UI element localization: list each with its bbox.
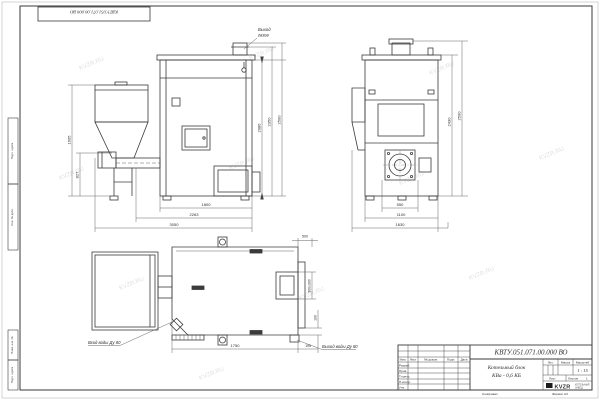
dim-side-width-inner: 550 bbox=[397, 202, 404, 207]
watermark: KVZR.RU bbox=[199, 366, 226, 381]
titleblock-name-line1: Котельный блок bbox=[487, 364, 526, 371]
dim-front-height-outer: 2500 bbox=[277, 115, 282, 125]
dim-front-left-outer: 1605 bbox=[67, 135, 72, 145]
footer-copied-label: Копировал bbox=[482, 392, 498, 396]
title-block: КВТУ.051.071.00.000 ВО Котельный блок КВ… bbox=[398, 345, 592, 390]
titleblock-col-doc: № докум. bbox=[424, 358, 438, 362]
titleblock-sheet-label: Лист bbox=[549, 376, 556, 380]
footer-format-label: Формат А3 bbox=[552, 392, 568, 396]
dim-side-width-mid: 1100 bbox=[397, 212, 406, 217]
margin-label-4: Подп. и дата bbox=[10, 366, 14, 383]
dim-plan-length: 1750 bbox=[231, 343, 241, 348]
titleblock-row-razrab: Разраб. bbox=[399, 364, 410, 368]
titleblock-lit-label: Лит. bbox=[548, 360, 554, 364]
titleblock-doc-number: КВТУ.051.071.00.000 ВО bbox=[494, 349, 568, 357]
titleblock-sheets-value: 1 bbox=[586, 376, 588, 380]
top-stamp-doc-number: КВТУ.051.071.00.000 ВО bbox=[69, 10, 119, 15]
titleblock-scale-label: Масштаб bbox=[576, 360, 589, 364]
watermark: KVZR.RU bbox=[429, 61, 456, 76]
dim-plan-offset: 195 bbox=[305, 344, 311, 348]
gas-outlet-label-line2: газов bbox=[258, 33, 269, 38]
dim-side-height-outer: 2500 bbox=[457, 111, 462, 121]
side-dimensions bbox=[352, 41, 468, 232]
titleblock-row-tkontr: Т.контр. bbox=[399, 375, 410, 379]
dim-front-left-inner: 827 bbox=[75, 171, 80, 178]
water-outlet-label: Выход воды Ду 80 bbox=[322, 344, 358, 349]
dim-side-height-inner: 2430 bbox=[447, 117, 452, 127]
dim-side-width-total: 1630 bbox=[396, 222, 406, 227]
dim-front-width-total: 3050 bbox=[170, 222, 180, 227]
titleblock-col-list: Лист bbox=[410, 358, 417, 362]
titleblock-col-izm: Изм. bbox=[400, 358, 407, 362]
logo-text: KVZR bbox=[555, 384, 571, 390]
drawing-sheet: KVZR.RU KVZR.RU KVZR.RU KVZR.RU KVZR.RU … bbox=[0, 0, 600, 400]
titleblock-row-nkontr: Н.контр. bbox=[399, 380, 411, 384]
dim-front-width-mid: 2263 bbox=[190, 212, 200, 217]
titleblock-row-utv: Утв. bbox=[399, 386, 405, 390]
titleblock-col-sign: Подп. bbox=[447, 358, 455, 362]
watermark: KVZR.RU bbox=[399, 171, 426, 186]
watermark: KVZR.RU bbox=[119, 276, 146, 291]
logo-mark-icon bbox=[546, 383, 553, 388]
dim-front-height-inner: 2086 bbox=[257, 123, 262, 133]
titleblock-mass-label: Масса bbox=[561, 360, 570, 364]
titleblock-name-line2: КВа - 0,6 КБ bbox=[491, 373, 522, 379]
margin-label-1: Подп. и дата bbox=[10, 142, 14, 159]
titleblock-scale-value: 1 : 15 bbox=[577, 368, 588, 373]
margin-label-2: Инв. № дубл. bbox=[10, 208, 14, 226]
gas-outlet-label-line1: Выход bbox=[258, 27, 271, 32]
watermark: KVZR.RU bbox=[469, 266, 496, 281]
logo-sub-line2: ЗАВОД bbox=[575, 387, 583, 390]
dim-plan-right: 100 bbox=[314, 315, 318, 321]
titleblock-row-prov: Пров. bbox=[399, 369, 407, 373]
watermark: KVZR.RU bbox=[79, 56, 106, 71]
water-inlet-label: Вход воды Ду 80 bbox=[88, 340, 121, 345]
dim-front-height-mid: 2350 bbox=[267, 117, 272, 127]
drawing-canvas: KVZR.RU KVZR.RU KVZR.RU KVZR.RU KVZR.RU … bbox=[0, 0, 600, 400]
dim-front-width-body: 1800 bbox=[202, 202, 212, 207]
manufacturer-logo: KVZR КОТЕЛЬНЫЙ ЗАВОД bbox=[546, 383, 590, 390]
margin-label-3: Взам. инв. № bbox=[10, 336, 14, 353]
titleblock-col-date: Дата bbox=[461, 358, 468, 362]
watermark-layer: KVZR.RU KVZR.RU KVZR.RU KVZR.RU KVZR.RU … bbox=[59, 46, 566, 381]
dim-plan-hatch: 300х300 bbox=[308, 279, 312, 292]
watermark: KVZR.RU bbox=[539, 146, 566, 161]
logo-sub-line1: КОТЕЛЬНЫЙ bbox=[575, 384, 590, 387]
top-left-doc-stamp: КВТУ.051.071.00.000 ВО bbox=[38, 7, 150, 21]
dim-plan-top: 500 bbox=[302, 235, 308, 239]
titleblock-sheets-label: Листов bbox=[568, 376, 578, 380]
watermark: KVZR.RU bbox=[229, 156, 256, 171]
watermark: KVZR.RU bbox=[249, 46, 276, 61]
